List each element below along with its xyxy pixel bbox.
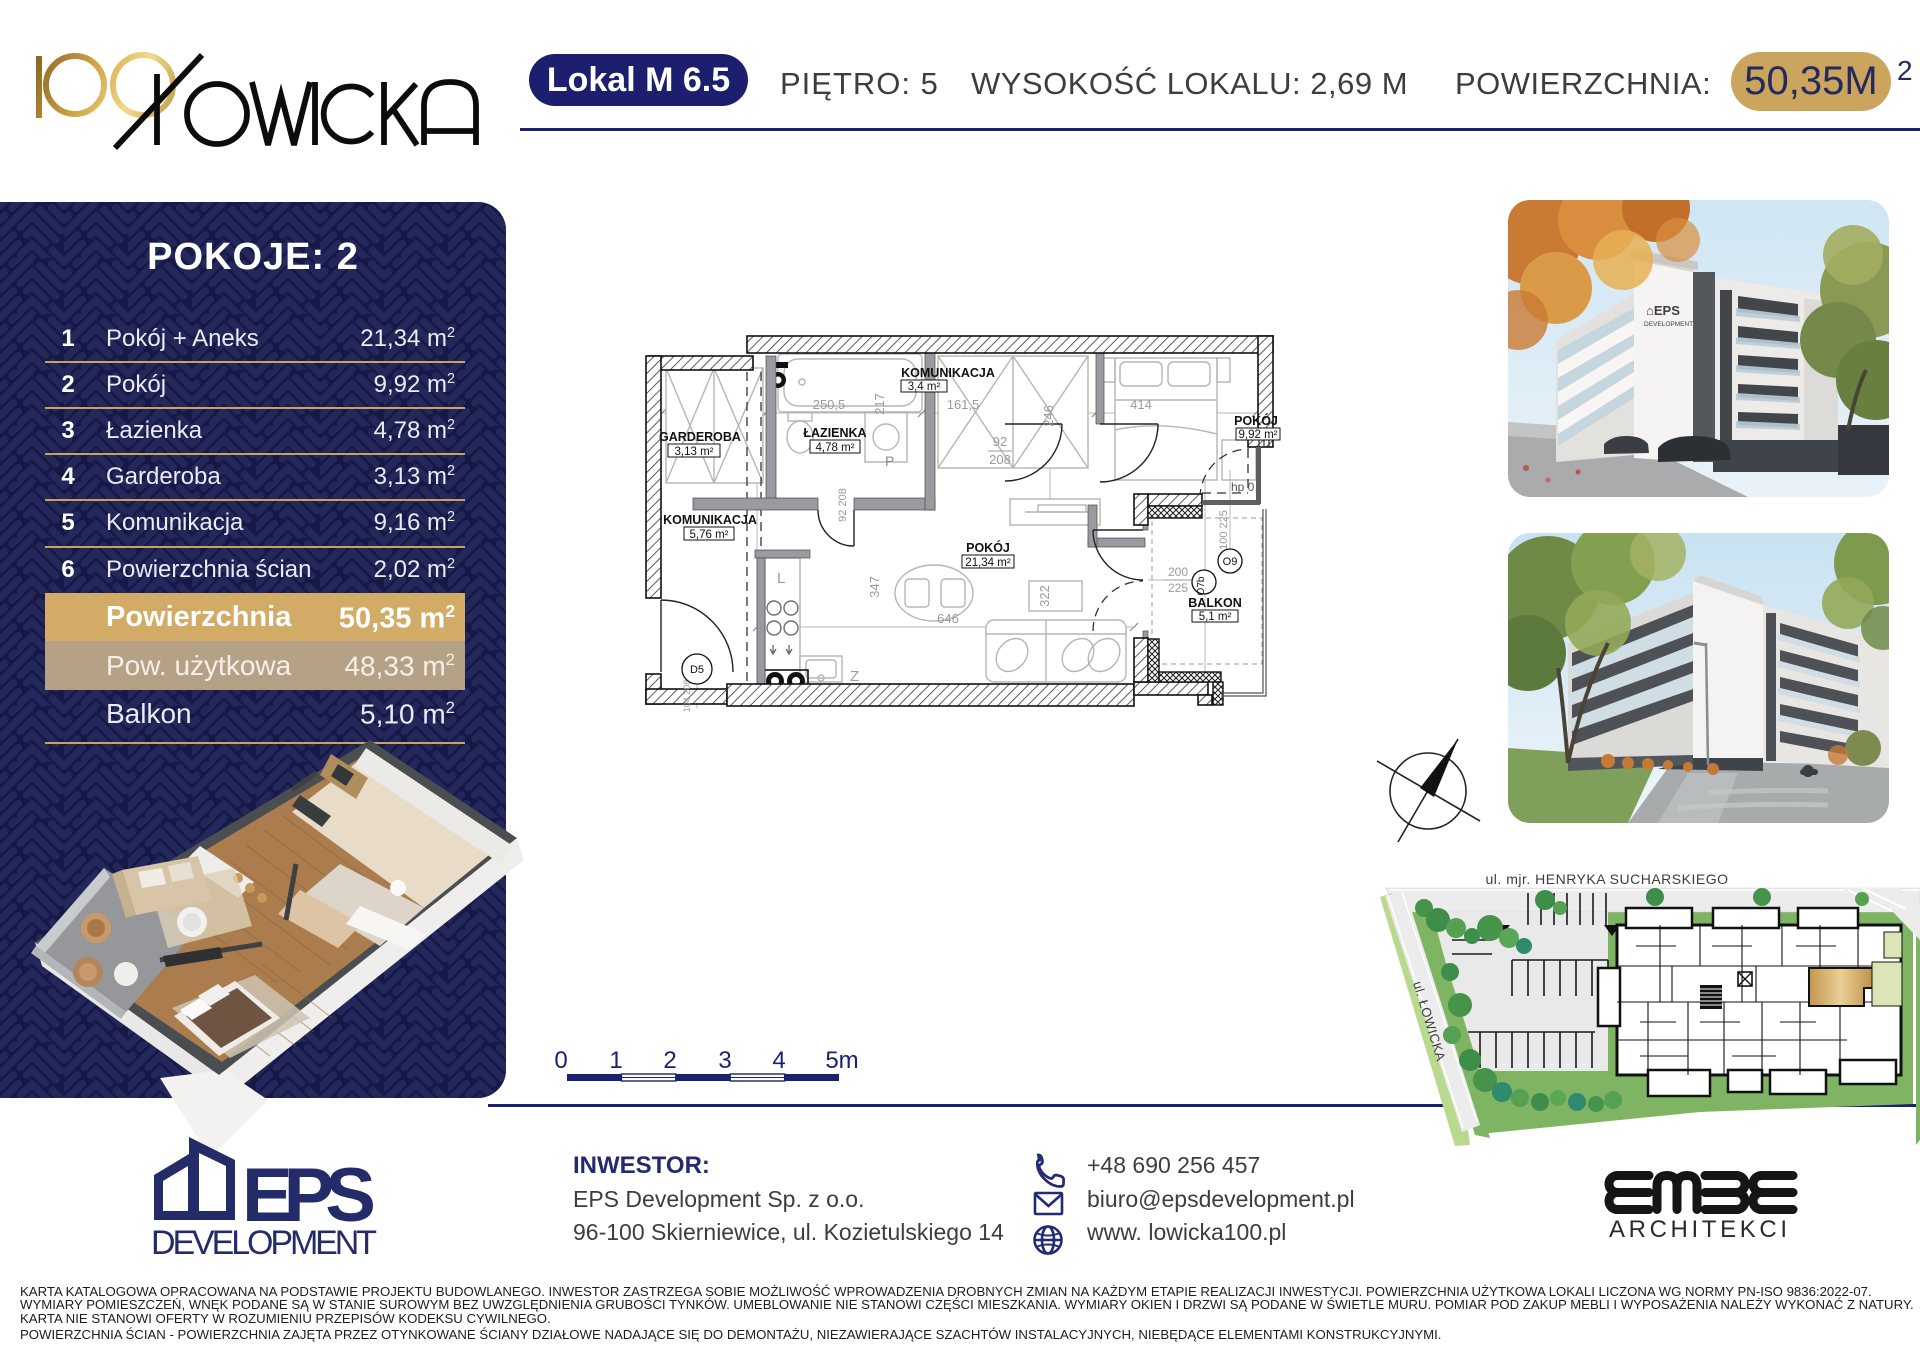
svg-text:217: 217 <box>872 393 887 415</box>
svg-text:3,4 m²: 3,4 m² <box>908 381 941 393</box>
svg-text:5m: 5m <box>825 1047 858 1074</box>
svg-text:DEVELOPMENT: DEVELOPMENT <box>1644 321 1693 328</box>
svg-text:225: 225 <box>1168 581 1188 595</box>
svg-text:347: 347 <box>867 576 882 598</box>
svg-text:0: 0 <box>554 1047 567 1074</box>
svg-text:ŁAZIENKA: ŁAZIENKA <box>803 426 866 440</box>
svg-text:2: 2 <box>663 1047 676 1074</box>
svg-text:92: 92 <box>993 434 1007 449</box>
svg-text:ARCHITEKCI: ARCHITEKCI <box>1609 1216 1793 1243</box>
svg-text:250,5: 250,5 <box>813 397 846 412</box>
svg-text:P: P <box>885 453 894 469</box>
svg-text:246: 246 <box>1041 405 1056 427</box>
svg-text:3,13 m²: 3,13 m² <box>675 446 714 458</box>
svg-text:4: 4 <box>772 1047 785 1074</box>
svg-text:161,5: 161,5 <box>947 397 980 412</box>
svg-text:208: 208 <box>989 452 1011 467</box>
svg-text:DEVELOPMENT: DEVELOPMENT <box>151 1224 377 1262</box>
svg-text:Z: Z <box>850 668 859 685</box>
svg-text:9,92 m²: 9,92 m² <box>1239 429 1278 441</box>
svg-text:BALKON: BALKON <box>1188 596 1241 610</box>
svg-text:200: 200 <box>1168 565 1188 579</box>
svg-text:21,34 m²: 21,34 m² <box>965 557 1011 569</box>
svg-text:L: L <box>777 570 785 587</box>
svg-text:5,1 m²: 5,1 m² <box>1199 611 1232 623</box>
svg-text:3: 3 <box>718 1047 731 1074</box>
svg-text:4,78 m²: 4,78 m² <box>816 442 855 454</box>
svg-text:1: 1 <box>609 1047 622 1074</box>
svg-text:646: 646 <box>937 611 959 626</box>
svg-text:414: 414 <box>1130 397 1152 412</box>
svg-text:100 225: 100 225 <box>1218 510 1230 550</box>
svg-text:ul. mjr. HENRYKA SUCHARSKIEGO: ul. mjr. HENRYKA SUCHARSKIEGO <box>1486 871 1729 887</box>
svg-text:104 208: 104 208 <box>682 680 692 713</box>
svg-text:92 208: 92 208 <box>837 488 849 522</box>
svg-text:O9: O9 <box>1223 556 1238 568</box>
svg-text:⌂EPS: ⌂EPS <box>1646 303 1680 318</box>
svg-text:POKÓJ: POKÓJ <box>966 540 1010 555</box>
svg-text:hp 0: hp 0 <box>1231 480 1255 494</box>
svg-text:GARDEROBA: GARDEROBA <box>659 430 741 444</box>
svg-text:KOMUNIKACJA: KOMUNIKACJA <box>901 366 995 380</box>
svg-text:KOMUNIKACJA: KOMUNIKACJA <box>663 513 757 527</box>
svg-text:D5: D5 <box>690 664 704 676</box>
svg-text:POKÓJ: POKÓJ <box>1234 413 1278 428</box>
svg-text:O7b: O7b <box>1196 576 1207 595</box>
svg-text:322: 322 <box>1037 585 1052 607</box>
svg-text:5,76 m²: 5,76 m² <box>690 529 729 541</box>
